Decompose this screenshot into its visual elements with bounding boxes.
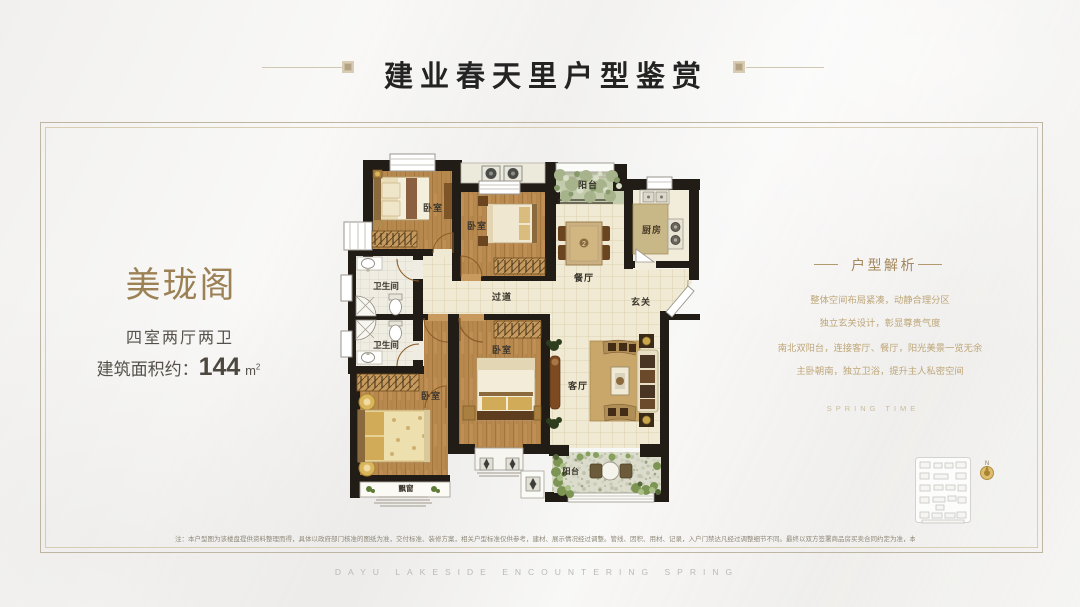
svg-text:卫生间: 卫生间	[373, 339, 399, 350]
svg-text:客厅: 客厅	[567, 380, 588, 391]
svg-text:卧室: 卧室	[423, 202, 443, 213]
svg-text:卧室: 卧室	[421, 390, 441, 401]
svg-text:玄关: 玄关	[631, 296, 651, 307]
svg-text:阳台: 阳台	[578, 179, 598, 190]
svg-text:卫生间: 卫生间	[373, 280, 399, 291]
svg-text:卧室: 卧室	[492, 344, 512, 355]
svg-text:过道: 过道	[492, 291, 512, 302]
svg-text:卧室: 卧室	[467, 220, 487, 231]
svg-text:厨房: 厨房	[642, 224, 662, 235]
svg-text:飘窗: 飘窗	[399, 483, 414, 493]
svg-text:2: 2	[582, 241, 586, 248]
svg-text:阳台: 阳台	[563, 466, 580, 476]
svg-text:餐厅: 餐厅	[573, 272, 594, 283]
